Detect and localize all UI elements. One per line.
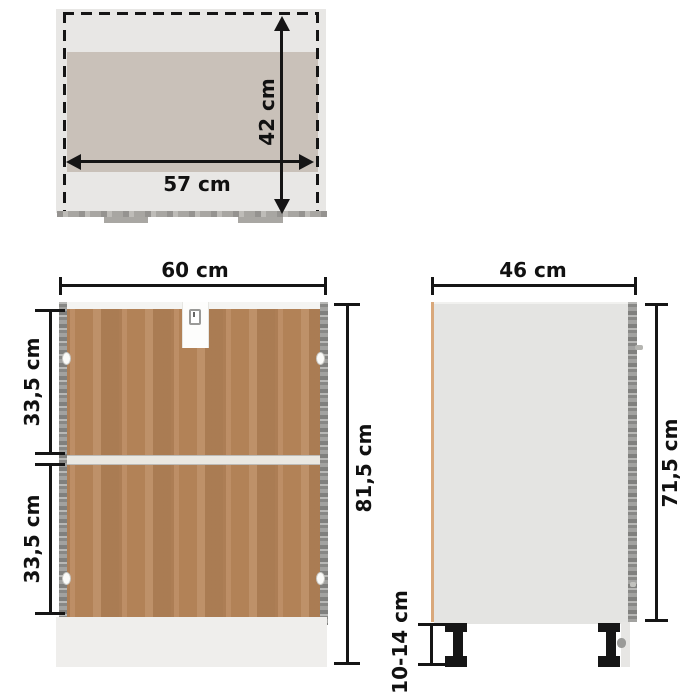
dimension-cap xyxy=(35,463,65,466)
side-view-back-panel-edge xyxy=(628,302,637,622)
arrow-right-icon xyxy=(299,154,314,170)
dimension-cap xyxy=(324,277,327,295)
side-view-body-height-label: 71,5 cm xyxy=(660,418,680,507)
dimension-cap xyxy=(334,303,360,306)
dimension-cap xyxy=(645,619,668,622)
cam-connector xyxy=(62,352,71,365)
front-view-keyhole-slot xyxy=(189,309,201,325)
side-view-legs-label: 10-14 cm xyxy=(390,590,410,694)
top-view-left-foot-plate xyxy=(104,217,148,223)
front-view-width-label: 60 cm xyxy=(161,260,229,280)
top-view-width-dimension-line xyxy=(78,160,302,163)
dimension-cap xyxy=(59,277,62,295)
connector-mark xyxy=(630,582,636,587)
cam-connector xyxy=(316,352,325,365)
top-view-dashed-top-edge xyxy=(63,12,319,15)
leg-top-flange xyxy=(598,623,620,632)
front-view-width-dimension-line xyxy=(59,284,327,287)
top-view-depth-label: 42 cm xyxy=(257,78,277,146)
front-view-lower-section-dimension-line xyxy=(49,463,52,615)
dimension-cap xyxy=(334,662,360,665)
front-view-total-height-dimension-line xyxy=(346,303,349,665)
leg-foot xyxy=(445,656,467,667)
connector-mark xyxy=(635,345,643,350)
front-view-lower-section-label: 33,5 cm xyxy=(22,494,42,583)
top-view-right-foot-plate xyxy=(238,217,283,223)
top-view-dashed-left-edge xyxy=(63,12,66,212)
leg-top-flange xyxy=(445,623,467,632)
dimension-cap xyxy=(431,277,434,295)
dimension-cap xyxy=(418,623,445,626)
side-view-side-panel xyxy=(434,302,628,624)
product-dimension-diagram: 57 cm 42 cm 60 cm 33,5 cm xyxy=(0,0,700,700)
arrow-down-icon xyxy=(274,199,290,214)
front-view-upper-section-dimension-line xyxy=(49,309,52,455)
top-view-depth-dimension-line xyxy=(280,28,283,202)
leg-adjuster-knob xyxy=(617,638,626,648)
front-view-shelf-edge xyxy=(67,455,320,465)
side-view-depth-dimension-line xyxy=(431,284,637,287)
leg-stem xyxy=(606,632,616,656)
dimension-cap xyxy=(634,277,637,295)
dimension-cap xyxy=(418,663,445,666)
top-view-width-label: 57 cm xyxy=(163,174,231,194)
front-view-upper-section-label: 33,5 cm xyxy=(22,337,42,426)
side-view-depth-label: 46 cm xyxy=(499,260,567,280)
dimension-cap xyxy=(35,612,65,615)
side-view-legs-dimension-line xyxy=(430,623,433,666)
leg-stem xyxy=(453,632,463,656)
cam-connector xyxy=(316,572,325,585)
arrow-left-icon xyxy=(66,154,81,170)
leg-foot xyxy=(598,656,620,667)
front-view-plinth-area xyxy=(56,617,327,667)
cam-connector xyxy=(62,572,71,585)
top-view-dashed-right-edge xyxy=(316,12,319,212)
dimension-cap xyxy=(35,309,65,312)
front-view-total-height-label: 81,5 cm xyxy=(354,423,374,512)
arrow-up-icon xyxy=(274,16,290,31)
dimension-cap xyxy=(35,452,65,455)
dimension-cap xyxy=(645,303,668,306)
front-view-keyhole-pin xyxy=(193,312,195,317)
